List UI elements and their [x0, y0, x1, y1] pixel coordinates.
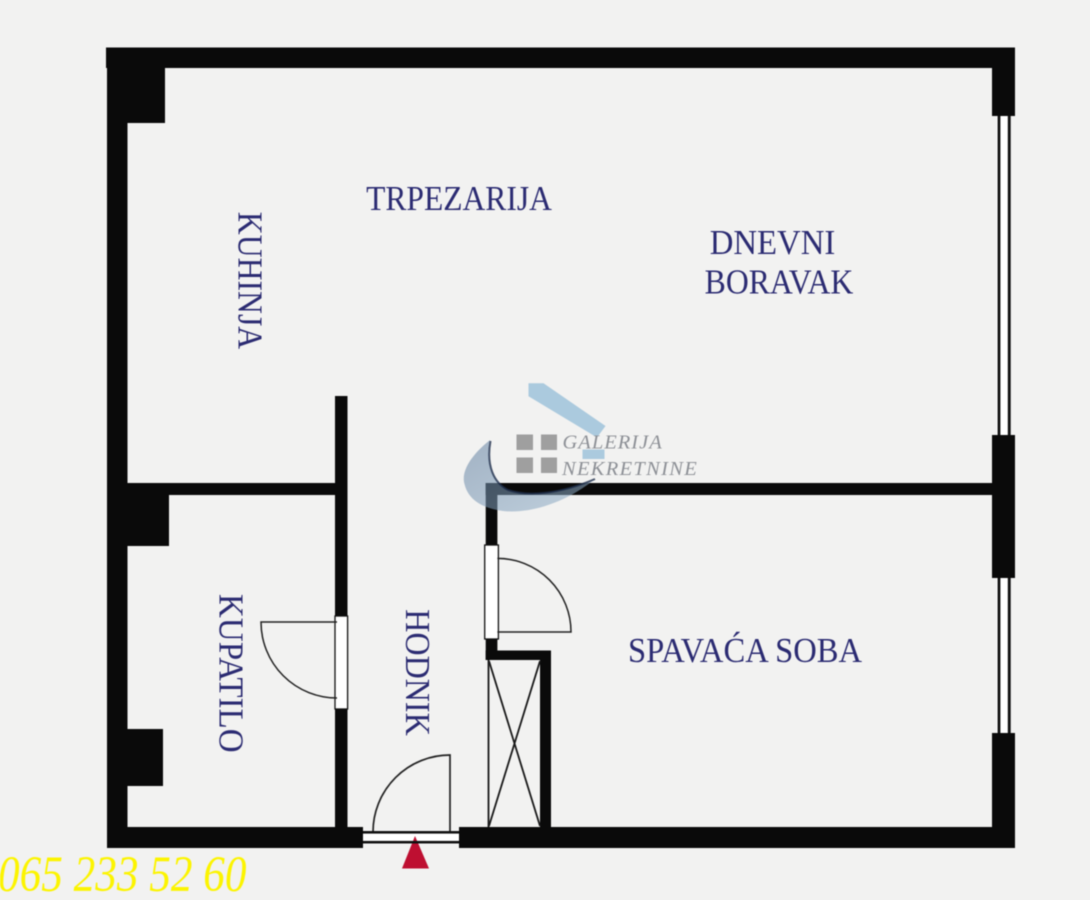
svg-text:HODNIK: HODNIK: [398, 609, 436, 735]
svg-text:KUPATILO: KUPATILO: [211, 594, 249, 753]
svg-text:NEKRETNINE: NEKRETNINE: [561, 458, 698, 480]
svg-text:KUHINJA: KUHINJA: [230, 212, 269, 350]
svg-text:065 233 52 60: 065 233 52 60: [0, 847, 247, 900]
svg-text:BORAVAK: BORAVAK: [705, 263, 854, 302]
svg-text:GALERIJA: GALERIJA: [563, 431, 663, 453]
svg-text:TRPEZARIJA: TRPEZARIJA: [366, 181, 552, 219]
svg-text:SPAVAĆA SOBA: SPAVAĆA SOBA: [628, 631, 862, 670]
svg-text:DNEVNI: DNEVNI: [710, 224, 836, 262]
